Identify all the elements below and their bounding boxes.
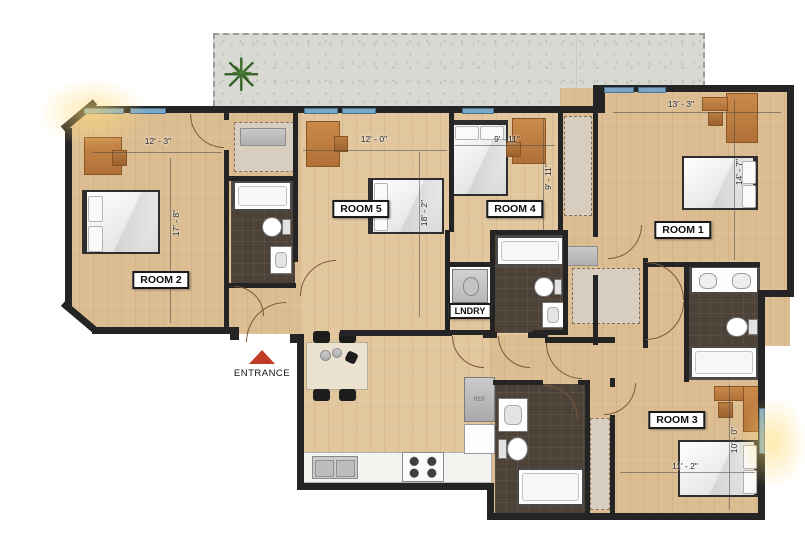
wall-bathcenter-right bbox=[563, 230, 568, 335]
plant-icon: ✳✳ bbox=[222, 52, 261, 98]
stove-cooktop bbox=[402, 452, 444, 482]
floor-plan: ✳✳ bbox=[0, 0, 805, 546]
dim-line-room2-h bbox=[170, 158, 171, 323]
bathroom1-toilet bbox=[726, 316, 758, 338]
dim-room4-height: 9' - 11" bbox=[543, 164, 553, 190]
wall-room5-right bbox=[449, 111, 454, 232]
wall-bottom-right bbox=[487, 513, 765, 520]
window-room1-a bbox=[604, 87, 634, 93]
bathroom2-sink bbox=[270, 246, 292, 274]
dresser-room2-closet bbox=[240, 128, 286, 146]
room3-label: ROOM 3 bbox=[648, 411, 705, 429]
dresser-center bbox=[566, 246, 598, 266]
wall-hall-bottom bbox=[340, 330, 452, 336]
pillow-room2 bbox=[88, 226, 103, 252]
room4-label: ROOM 4 bbox=[486, 200, 543, 218]
wall-right-room3 bbox=[758, 290, 765, 520]
wall-room4-bottom bbox=[490, 230, 568, 235]
dim-line-room5-w bbox=[303, 150, 447, 151]
wall-bath2-top bbox=[226, 176, 296, 181]
bathroom-center-toilet bbox=[534, 276, 562, 298]
refrigerator: REF bbox=[464, 377, 495, 422]
pillow-room4 bbox=[455, 126, 479, 140]
entrance-arrow-icon bbox=[249, 350, 275, 364]
closet-center bbox=[572, 268, 640, 324]
dim-room1-width: 13' - 3" bbox=[668, 99, 694, 109]
dining-chair bbox=[339, 389, 356, 401]
pillow-room1 bbox=[742, 161, 756, 184]
dim-line-room2-w bbox=[92, 152, 222, 153]
window-room1-b bbox=[638, 87, 666, 93]
chair-room1 bbox=[708, 112, 723, 126]
dim-room3-width: 11' - 2" bbox=[672, 461, 698, 471]
wall-bottom-mid bbox=[297, 483, 494, 490]
dining-chair bbox=[313, 389, 330, 401]
closet-room3 bbox=[590, 418, 610, 510]
bathroom3-toilet bbox=[498, 436, 528, 462]
dim-room5-width: 12' - 0" bbox=[361, 134, 387, 144]
wall-bath1-left bbox=[684, 262, 689, 382]
wall-hall-left bbox=[293, 111, 298, 262]
window-room4 bbox=[462, 108, 494, 114]
bathroom-center-tub bbox=[496, 236, 564, 266]
dim-room3-height: 10' - 0" bbox=[729, 427, 739, 453]
bathroom2-toilet bbox=[262, 216, 291, 238]
dim-room2-height: 17' - 8" bbox=[171, 210, 181, 236]
dim-line-room5-h bbox=[419, 152, 420, 317]
wall-hall2-stub1 bbox=[483, 332, 497, 338]
pillow-room2 bbox=[88, 196, 103, 222]
pillow-room3 bbox=[743, 445, 757, 469]
wall-left-room2 bbox=[65, 128, 72, 308]
window-room3 bbox=[759, 408, 765, 454]
desk-room1 bbox=[726, 93, 758, 143]
bathroom3-sink bbox=[498, 398, 528, 432]
washer-icon bbox=[452, 269, 488, 303]
wall-entrance-corner bbox=[290, 334, 304, 343]
wall-room2-bottom bbox=[92, 327, 234, 334]
room5-label: ROOM 5 bbox=[332, 200, 389, 218]
bathroom1-tub bbox=[690, 346, 758, 379]
table-decor-plate bbox=[320, 350, 331, 361]
table-decor-plate bbox=[332, 348, 342, 358]
dim-room4-width: 9' - 11" bbox=[494, 134, 520, 144]
wall-room1-left-upper bbox=[593, 85, 598, 237]
wall-bath3-right bbox=[585, 380, 590, 513]
wall-entrance-jamb bbox=[230, 327, 239, 340]
bathroom1-double-vanity bbox=[690, 266, 759, 294]
room1-label: ROOM 1 bbox=[654, 221, 711, 239]
bathroom3-tub bbox=[517, 468, 584, 506]
window-room2-b bbox=[130, 108, 166, 114]
kitchen-sink bbox=[312, 456, 358, 479]
dim-room5-height: 18' - 2" bbox=[419, 200, 429, 226]
window-room5-b bbox=[342, 108, 376, 114]
refrigerator-label: REF bbox=[474, 397, 486, 403]
dim-line-room4-w bbox=[455, 145, 555, 146]
window-room2-a bbox=[84, 108, 124, 114]
closet-hallway bbox=[564, 116, 592, 216]
wall-bath3-top-left bbox=[493, 380, 543, 385]
desk-room1-return bbox=[702, 97, 728, 111]
wall-bathcenter-left bbox=[490, 230, 495, 335]
dim-line-room1-w bbox=[613, 112, 781, 113]
wall-room4-right bbox=[558, 111, 563, 234]
window-room5-a bbox=[304, 108, 338, 114]
wall-room2-door-jamb bbox=[224, 111, 229, 120]
chair-room3 bbox=[718, 402, 733, 418]
bathroom2-tub bbox=[233, 181, 292, 211]
wall-room3-left bbox=[610, 415, 615, 513]
dim-room2-width: 12' - 3" bbox=[145, 136, 171, 146]
wall-lndry-top bbox=[445, 262, 493, 267]
dining-chair bbox=[313, 331, 330, 343]
kitchen-cabinet bbox=[464, 424, 495, 454]
pillow-room3 bbox=[743, 470, 757, 494]
wall-room1-left-lower bbox=[593, 275, 598, 345]
entrance-label: ENTRANCE bbox=[234, 368, 290, 379]
room2-label: ROOM 2 bbox=[132, 271, 189, 289]
laundry-label: LNDRY bbox=[449, 303, 492, 319]
pillow-room1 bbox=[742, 185, 756, 208]
bathroom-center-sink bbox=[542, 302, 564, 328]
wall-right-room1 bbox=[787, 85, 794, 297]
plant-inner-icon: ✳ bbox=[231, 60, 253, 86]
dim-line-room3-w bbox=[620, 472, 755, 473]
dim-room1-height: 14' - 7" bbox=[734, 159, 744, 185]
wall-left-dining bbox=[297, 340, 304, 490]
